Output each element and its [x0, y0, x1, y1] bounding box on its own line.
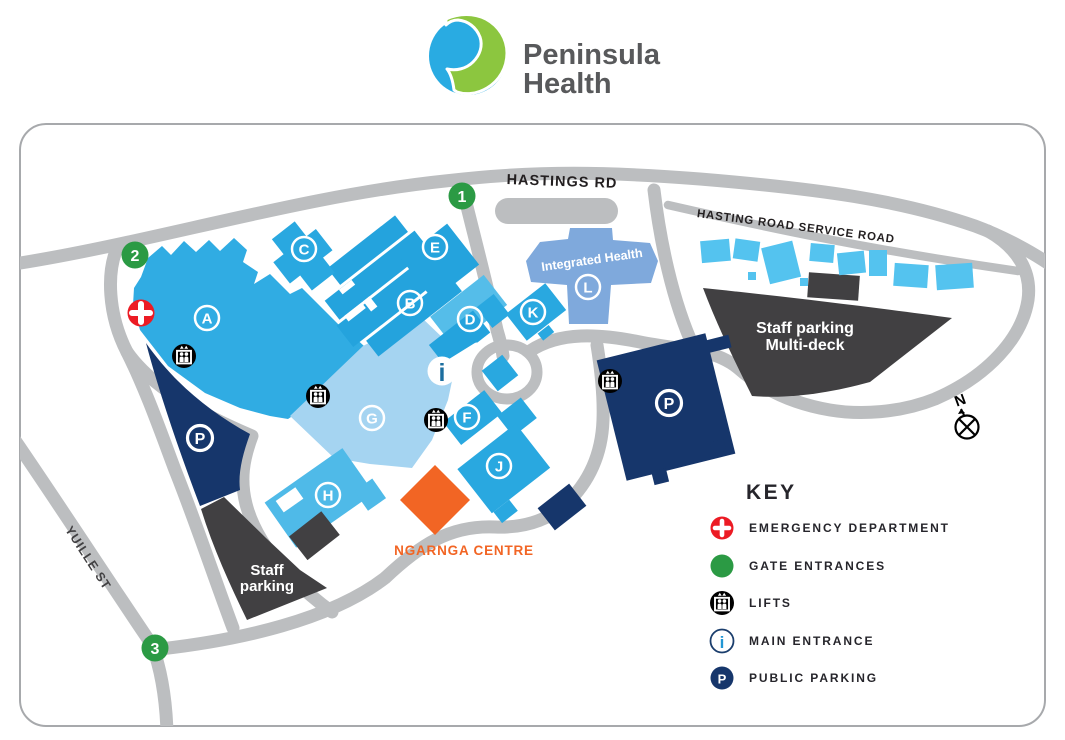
svg-text:H: H [323, 488, 334, 505]
svg-text:K: K [528, 305, 539, 322]
svg-text:J: J [495, 459, 503, 476]
svg-text:Multi-deck: Multi-deck [765, 337, 844, 354]
svg-text:D: D [465, 312, 476, 329]
svg-text:P: P [195, 431, 206, 448]
svg-text:B: B [405, 296, 416, 313]
svg-text:2: 2 [131, 248, 140, 265]
svg-text:E: E [430, 240, 440, 257]
svg-text:G: G [366, 411, 378, 428]
svg-text:Peninsula: Peninsula [523, 39, 661, 71]
svg-text:i: i [439, 359, 446, 387]
svg-text:PUBLIC PARKING: PUBLIC PARKING [749, 671, 878, 685]
svg-text:C: C [299, 242, 310, 259]
svg-text:1: 1 [458, 189, 467, 206]
svg-text:NGARNGA CENTRE: NGARNGA CENTRE [394, 543, 534, 558]
svg-text:P: P [718, 672, 727, 687]
svg-text:Staff parking: Staff parking [756, 320, 854, 337]
svg-text:KEY: KEY [746, 481, 797, 504]
svg-text:GATE ENTRANCES: GATE ENTRANCES [749, 559, 886, 573]
svg-text:Health: Health [523, 68, 612, 100]
svg-text:P: P [664, 396, 675, 413]
svg-text:A: A [202, 311, 213, 328]
svg-text:LIFTS: LIFTS [749, 596, 792, 610]
svg-text:3: 3 [151, 641, 160, 658]
svg-text:MAIN ENTRANCE: MAIN ENTRANCE [749, 634, 874, 648]
svg-text:Staff: Staff [250, 562, 284, 579]
svg-text:L: L [583, 280, 592, 297]
svg-text:F: F [462, 410, 471, 427]
svg-text:EMERGENCY DEPARTMENT: EMERGENCY DEPARTMENT [749, 521, 950, 535]
svg-text:i: i [720, 633, 725, 652]
svg-text:parking: parking [240, 578, 294, 595]
